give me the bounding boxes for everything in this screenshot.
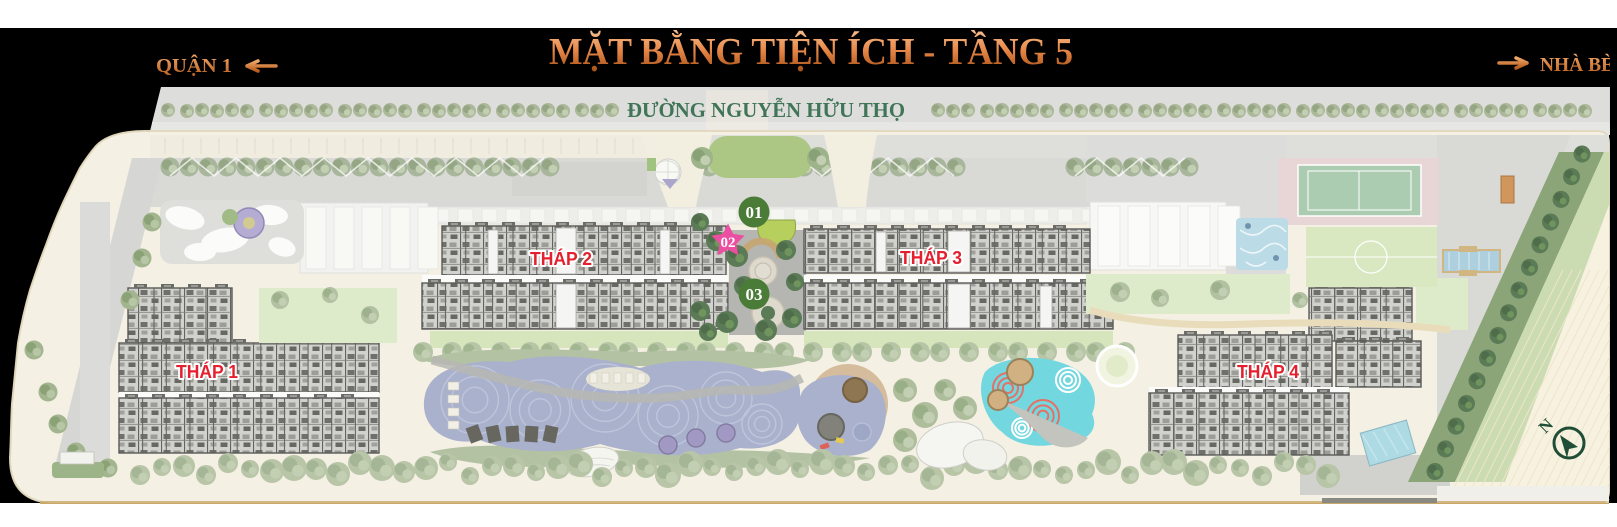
svg-text:THÁP 1: THÁP 1: [176, 361, 238, 382]
svg-text:THÁP 4: THÁP 4: [1237, 361, 1299, 382]
svg-text:THÁP 2: THÁP 2: [530, 248, 592, 269]
svg-text:02: 02: [721, 235, 736, 251]
svg-text:01: 01: [746, 203, 763, 222]
svg-text:QUẬN 1: QUẬN 1: [156, 54, 232, 77]
svg-text:MẶT BẰNG TIỆN ÍCH - TẦNG 5: MẶT BẰNG TIỆN ÍCH - TẦNG 5: [549, 30, 1073, 73]
svg-text:NHÀ BÈ: NHÀ BÈ: [1540, 53, 1614, 76]
svg-text:THÁP 3: THÁP 3: [900, 247, 962, 268]
svg-text:03: 03: [746, 285, 763, 304]
